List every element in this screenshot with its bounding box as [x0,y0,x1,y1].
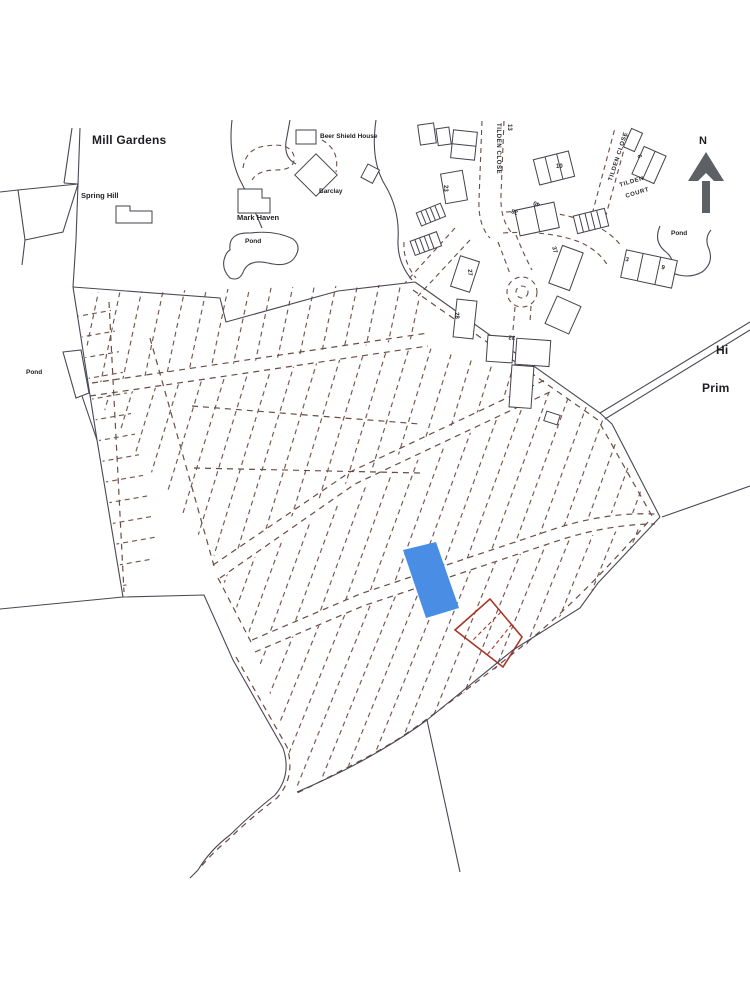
site-plan-map: Mill Gardens Spring Hill Beer Shield Hou… [0,0,750,1000]
label-beer-shield-house: Beer Shield House [320,134,377,141]
plotland-strips [75,284,653,790]
label-mark-haven: Mark Haven [237,214,279,222]
mark-haven-building [238,189,270,213]
map-linework [0,0,750,1000]
north-arrow-icon [688,152,724,213]
label-spring-hill: Spring Hill [81,192,119,200]
house-number: 28 [453,312,460,319]
label-barclay: Barclay [319,189,343,196]
garage-strip [410,232,441,256]
label-pond-right: Pond [671,231,687,238]
garage-strip [416,203,445,226]
beer-shield-house-building [296,130,316,144]
house-number: 32 [508,333,515,340]
house-number: 10 [556,164,563,170]
label-pond-top: Pond [245,239,261,246]
label-high-partial: Hi [716,344,728,356]
spring-hill-building [116,206,152,223]
label-mill-gardens: Mill Gardens [92,134,166,146]
label-pond-left: Pond [26,370,42,377]
house-number: 27 [466,269,473,276]
label-tilden-close-vertical: TILDEN CLOSE [495,123,501,174]
label-primary-partial: Prim [702,382,729,394]
house-number: 23 [442,185,448,192]
label-north-n: N [699,136,707,147]
house-number: 13 [506,124,512,131]
